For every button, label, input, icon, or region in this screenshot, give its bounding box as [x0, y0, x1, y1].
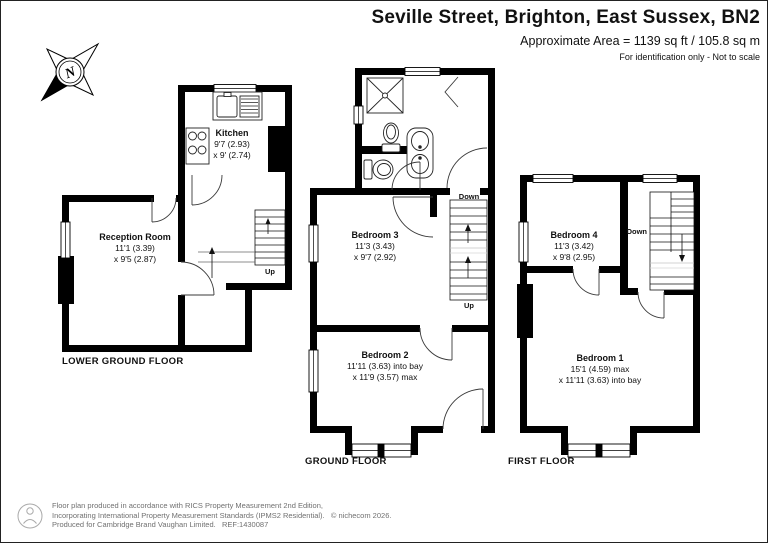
- room-label-bedroom1: Bedroom 1 15'1 (4.59) max x 11'11 (3.63)…: [533, 353, 667, 386]
- shower-door-icon: [445, 77, 458, 107]
- shower-icon: [367, 78, 403, 113]
- toilet-icon: [382, 123, 400, 152]
- footer-line-2: Incorporating International Property Mea…: [52, 511, 391, 521]
- footer-line-3: Produced for Cambridge Brand Vaughan Lim…: [52, 520, 391, 530]
- kitchen-sink-icon: [213, 92, 262, 120]
- floor-label-first: FIRST FLOOR: [508, 456, 575, 467]
- gf-up-label: Up: [448, 301, 490, 310]
- floor-label-ground: GROUND FLOOR: [305, 456, 387, 467]
- approximate-area: Approximate Area = 1139 sq ft / 105.8 sq…: [371, 34, 760, 48]
- room-label-bedroom3: Bedroom 3 11'3 (3.43) x 9'7 (2.92): [315, 230, 435, 263]
- page-header: Seville Street, Brighton, East Sussex, B…: [371, 7, 760, 62]
- room-label-kitchen: Kitchen 9'7 (2.93) x 9' (2.74): [172, 128, 292, 161]
- gf-stairs-icon: [450, 200, 487, 300]
- ff-down-label: Down: [600, 227, 647, 236]
- lower-ground-floor-plan: [58, 85, 292, 353]
- floorplan-page: N: [0, 0, 768, 543]
- footer-line-1: Floor plan produced in accordance with R…: [52, 501, 391, 511]
- footer-disclaimer: Floor plan produced in accordance with R…: [52, 501, 391, 530]
- compass-rose-icon: N: [42, 44, 98, 100]
- page-title: Seville Street, Brighton, East Sussex, B…: [371, 7, 760, 29]
- lgf-up-label: Up: [255, 267, 285, 276]
- first-floor-plan: [517, 175, 700, 458]
- nichecom-logo-icon: [18, 504, 42, 528]
- floor-label-lower-ground: LOWER GROUND FLOOR: [62, 356, 184, 367]
- room-label-bedroom2: Bedroom 2 11'11 (3.63) into bay x 11'9 (…: [318, 350, 452, 383]
- ff-stairs-icon: [650, 192, 694, 290]
- gf-down-label: Down: [448, 192, 490, 201]
- identification-note: For identification only - Not to scale: [371, 52, 760, 62]
- wc-toilet-icon: [364, 160, 393, 179]
- room-label-reception: Reception Room 11'1 (3.39) x 9'5 (2.87): [73, 232, 197, 265]
